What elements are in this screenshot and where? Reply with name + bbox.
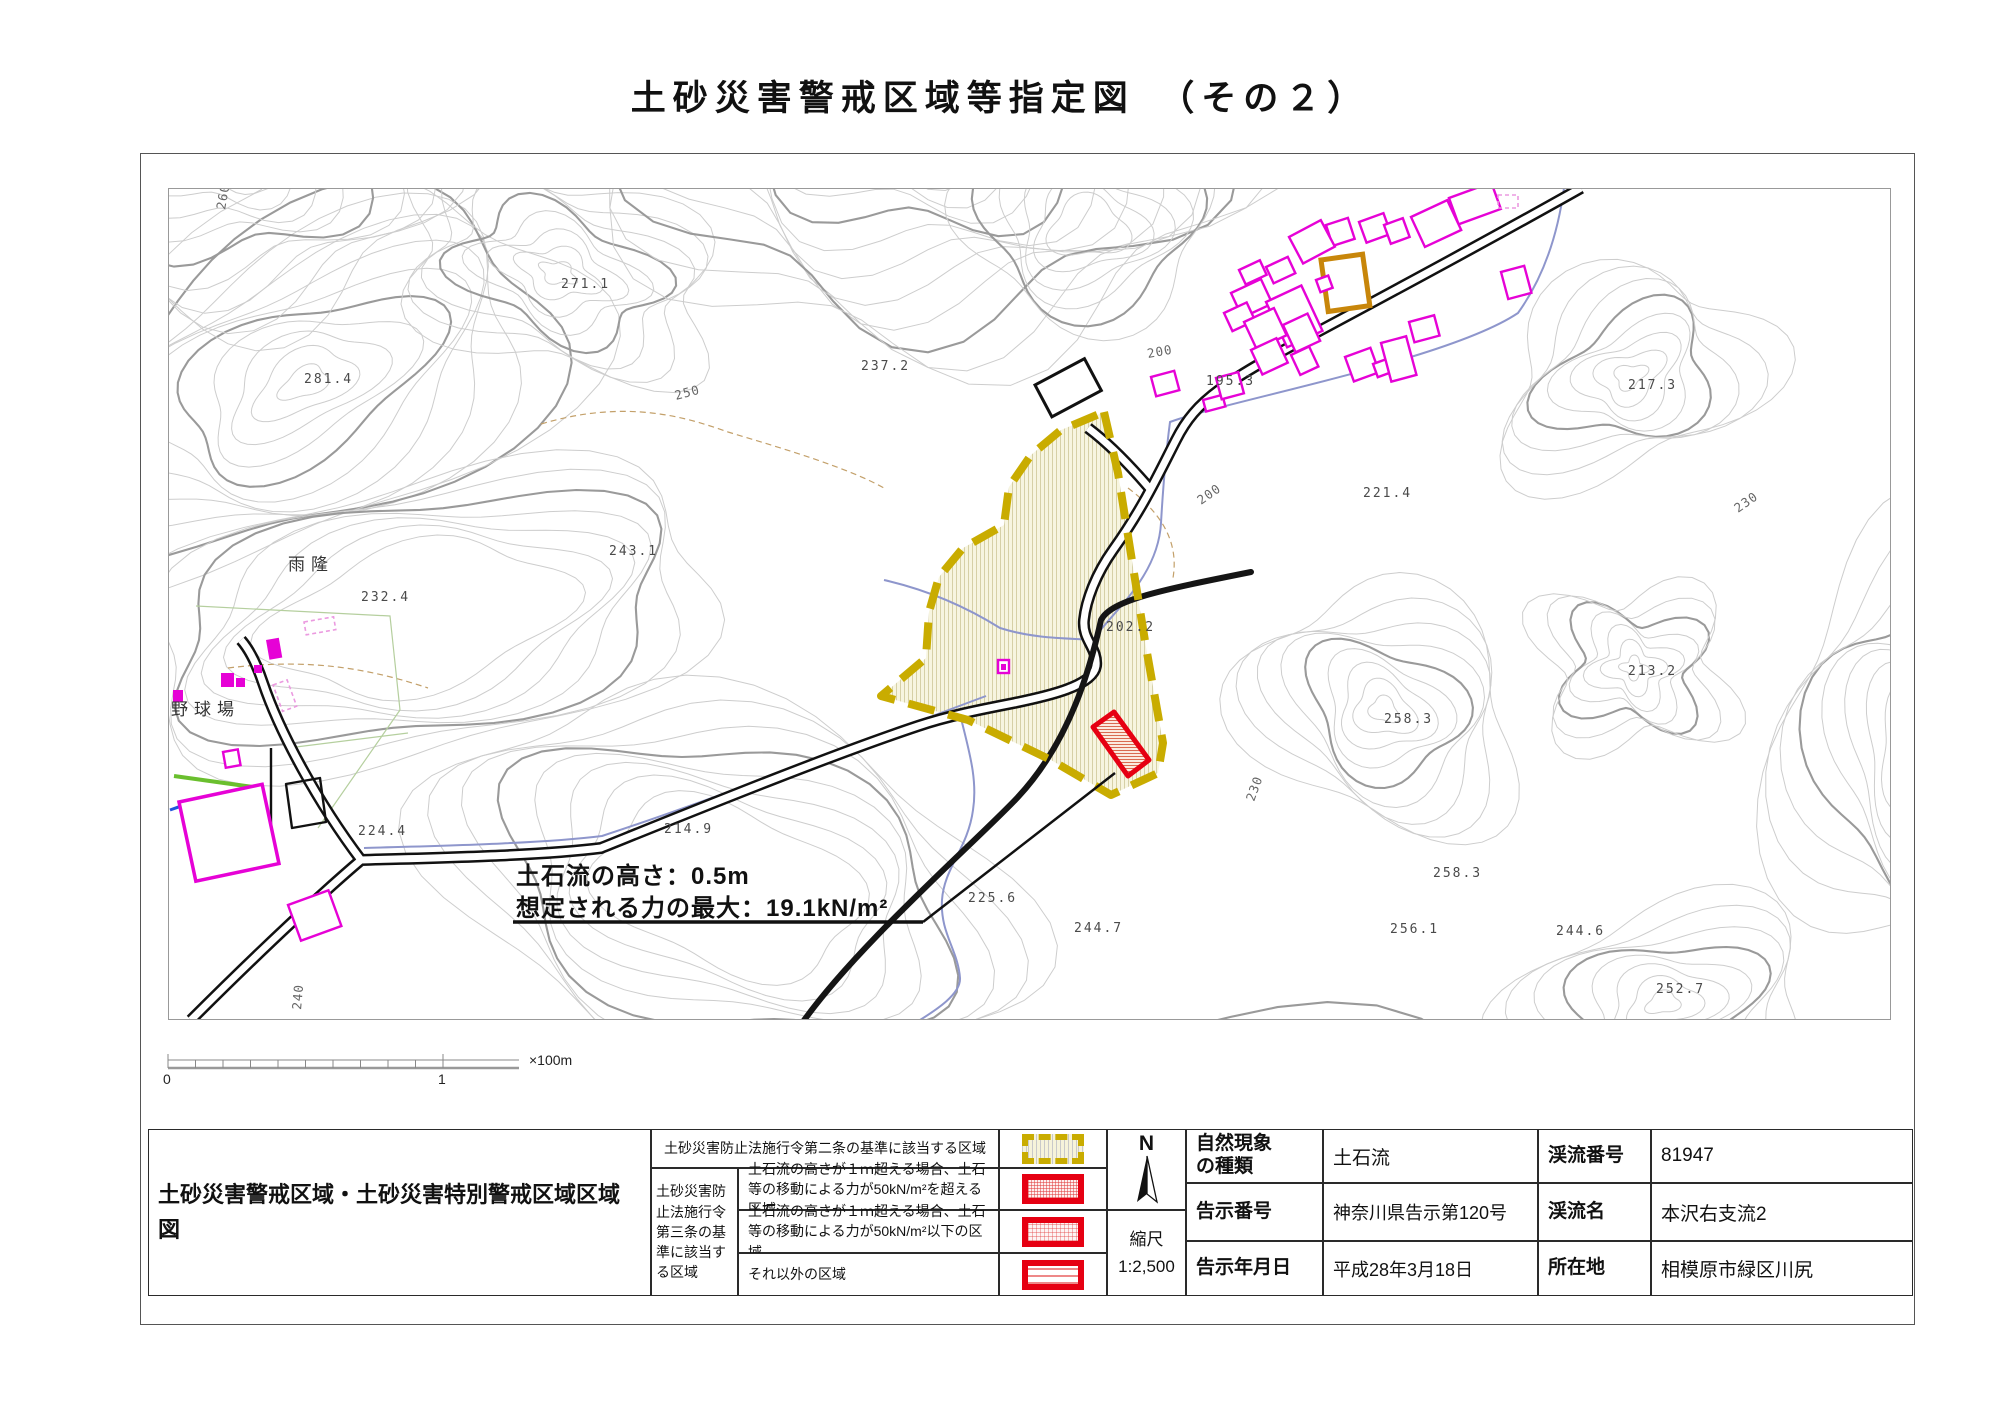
elevation-label: 195.3 xyxy=(1206,374,1255,389)
legend-zone3-row1-symbol-cell xyxy=(999,1168,1107,1210)
elevation-label: 200 xyxy=(1194,480,1224,507)
elevation-label: 244.7 xyxy=(1074,921,1123,936)
building-outline xyxy=(254,665,262,673)
building-outline xyxy=(223,749,241,767)
legend-zone2-symbol-cell xyxy=(999,1129,1107,1168)
building-outline xyxy=(221,673,234,687)
building-outline xyxy=(1151,371,1179,397)
footpath-line xyxy=(541,411,884,488)
contour-line xyxy=(695,188,1161,236)
annotation-debris-height: 土石流の高さ：0.5m xyxy=(516,862,750,890)
building-outline xyxy=(1001,664,1006,670)
contour-line xyxy=(168,188,385,267)
map-layers xyxy=(168,188,1891,1020)
legend-zone3-row3-desc: それ以外の区域 xyxy=(738,1253,999,1296)
building-outline xyxy=(1501,266,1531,299)
stream-name-label: 渓流名 xyxy=(1538,1183,1651,1241)
building-outline xyxy=(179,784,279,881)
building-outline xyxy=(1409,315,1440,342)
elevation-label: 281.4 xyxy=(304,372,353,387)
building-outline xyxy=(236,678,245,687)
phenomenon-value: 土石流 xyxy=(1323,1129,1538,1183)
contour-line xyxy=(1481,884,1799,1020)
scale-bar-ticks xyxy=(168,1054,443,1068)
contour-line xyxy=(1527,295,1710,437)
location-value: 相模原市緑区川尻 xyxy=(1651,1241,1913,1296)
elevation-label: 221.4 xyxy=(1363,486,1412,501)
contour-line xyxy=(440,193,676,353)
stream-number-label: 渓流番号 xyxy=(1538,1129,1651,1183)
notice-date-value: 平成28年3月18日 xyxy=(1323,1241,1538,1296)
building-outline xyxy=(304,617,336,635)
contour-line xyxy=(1502,266,1768,475)
scale-value: 1:2,500 xyxy=(1108,1253,1185,1280)
legend-symbol-special-zone-over50 xyxy=(1022,1174,1084,1204)
stream-name-value: 本沢右支流2 xyxy=(1651,1183,1913,1241)
contour-line xyxy=(185,511,652,725)
topographic-map: 土石流の高さ：0.5m 想定される力の最大：19.1kN/m² 271.1281… xyxy=(168,188,1891,1020)
footpath-line xyxy=(1128,488,1174,578)
elevation-label: 237.2 xyxy=(861,359,910,374)
location-label: 所在地 xyxy=(1538,1241,1651,1296)
contour-line xyxy=(945,188,1215,341)
compass-cell: N xyxy=(1107,1129,1186,1210)
phenomenon-label: 自然現象 の種類 xyxy=(1186,1129,1323,1183)
scale-caption: 縮尺 xyxy=(1108,1226,1185,1253)
contour-line xyxy=(1512,279,1739,451)
contour-line xyxy=(1822,632,1891,900)
legend-zone3-row2-symbol-cell xyxy=(999,1210,1107,1253)
scale-bar: 0 1 ×100m xyxy=(161,1048,631,1088)
building-outline xyxy=(1316,276,1333,293)
stream-number-value: 81947 xyxy=(1651,1129,1913,1183)
elevation-label: 252.7 xyxy=(1656,982,1705,997)
elevation-label: 214.9 xyxy=(664,822,713,837)
elevation-label: 244.6 xyxy=(1556,924,1605,939)
scale-unit-label: ×100m xyxy=(529,1052,572,1068)
elevation-label: 258.3 xyxy=(1384,712,1433,727)
contour-line xyxy=(548,188,1308,385)
building-outline xyxy=(266,638,282,660)
scale-cell: 縮尺 1:2,500 xyxy=(1107,1210,1186,1296)
legend-info-table: 土砂災害警戒区域・土砂災害特別警戒区域区域図 土砂災害防止法施行令第二条の基準に… xyxy=(148,1129,1913,1296)
contour-line xyxy=(1866,662,1891,843)
place-label: 雨隆 xyxy=(288,555,334,574)
elevation-label: 243.1 xyxy=(609,544,658,559)
building-outline xyxy=(1266,257,1295,283)
contour-line xyxy=(168,188,334,210)
contour-line xyxy=(1780,556,1891,937)
elevation-label: 250 xyxy=(673,382,702,403)
elevation-label: 258.3 xyxy=(1433,866,1482,881)
building-outline xyxy=(288,890,341,940)
contour-line xyxy=(224,525,613,711)
elevation-label: 271.1 xyxy=(561,277,610,292)
contour-line xyxy=(1220,573,1519,845)
elevation-label: 232.4 xyxy=(361,590,410,605)
elevation-label: 230 xyxy=(1731,488,1761,515)
place-label: 野球場 xyxy=(171,700,240,719)
elevation-label: 202.2 xyxy=(1106,620,1155,635)
annotation-max-force: 想定される力の最大：19.1kN/m² xyxy=(516,894,888,922)
elevation-label: 256.1 xyxy=(1390,922,1439,937)
contour-line xyxy=(168,188,436,313)
map-sheet-title-cell: 土砂災害警戒区域・土砂災害特別警戒区域区域図 xyxy=(148,1129,651,1296)
contour-line xyxy=(1034,188,1155,272)
outer-frame: 土石流の高さ：0.5m 想定される力の最大：19.1kN/m² 271.1281… xyxy=(140,153,1915,1325)
contour-line xyxy=(168,188,620,602)
scale-tick-one: 1 xyxy=(438,1071,446,1087)
contour-line xyxy=(168,193,521,531)
elevation-label: 200 xyxy=(1146,342,1174,361)
elevation-label: 213.2 xyxy=(1628,664,1677,679)
elevation-label: 240 xyxy=(289,983,306,1010)
notice-number-value: 神奈川県告示第120号 xyxy=(1323,1183,1538,1241)
contour-line xyxy=(620,188,1237,330)
contour-line xyxy=(1845,649,1891,873)
north-label: N xyxy=(1139,1133,1154,1154)
legend-symbol-special-zone-under50 xyxy=(1022,1217,1084,1247)
legend-symbol-warning-zone xyxy=(1022,1134,1084,1164)
contour-line xyxy=(1757,487,1891,939)
notice-number-label: 告示番号 xyxy=(1186,1183,1323,1241)
contour-line xyxy=(1766,519,1891,942)
contour-line xyxy=(753,1002,1650,1020)
stream-line xyxy=(1093,188,1564,640)
legend-zone3-row2-desc: 土石流の高さが１ｍ超える場合、土石等の移動による力が50kN/m²以下の区域 xyxy=(738,1210,999,1253)
contour-line xyxy=(1342,662,1439,749)
legend-zone3-group-label: 土砂災害防止法施行令第三条の基準に該当する区域 xyxy=(651,1168,738,1296)
north-arrow-icon xyxy=(1129,1154,1165,1206)
map-sheet-title: 土砂災害警戒区域・土砂災害特別警戒区域区域図 xyxy=(158,1178,641,1246)
elevation-label: 225.6 xyxy=(968,891,1017,906)
contour-line xyxy=(1534,927,1784,1020)
notice-date-label: 告示年月日 xyxy=(1186,1241,1323,1296)
contour-line xyxy=(232,331,393,445)
contour-line xyxy=(1236,598,1492,837)
elevation-label: 217.3 xyxy=(1628,378,1677,393)
legend-zone3-row3-symbol-cell xyxy=(999,1253,1107,1296)
map-area: 土石流の高さ：0.5m 想定される力の最大：19.1kN/m² 271.1281… xyxy=(168,188,1891,1020)
legend-symbol-other-zone xyxy=(1022,1260,1084,1290)
contour-line xyxy=(1882,680,1892,812)
building-outline xyxy=(1035,359,1101,417)
scale-tick-zero: 0 xyxy=(163,1071,171,1087)
page-title: 土砂災害警戒区域等指定図 （その２） xyxy=(0,70,2000,121)
elevation-label: 224.4 xyxy=(358,824,407,839)
elevation-label: 230 xyxy=(1243,774,1266,803)
contour-line xyxy=(1328,649,1457,768)
